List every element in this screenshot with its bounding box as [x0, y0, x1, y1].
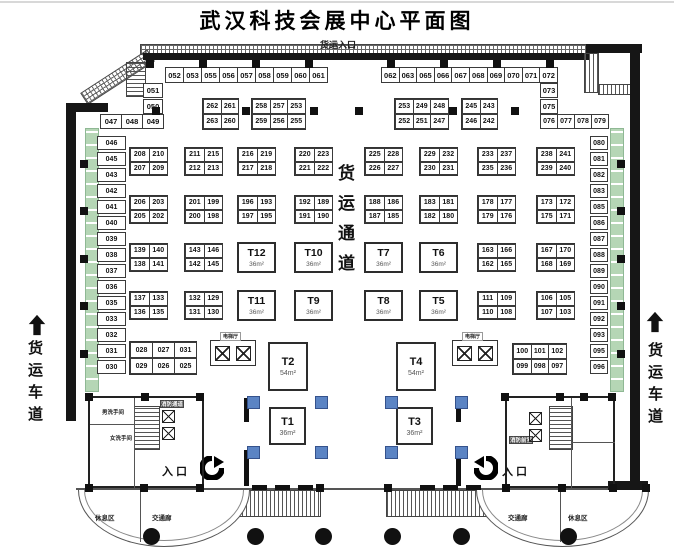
- column-circle: [453, 528, 470, 545]
- fire-passage-label: 消防通道: [160, 400, 184, 408]
- column-square: [608, 393, 616, 401]
- column-circle: [560, 528, 577, 545]
- booth-cell[interactable]: 079: [591, 114, 609, 129]
- booth-cell[interactable]: 255: [287, 114, 306, 129]
- blue-column-square: [385, 446, 398, 459]
- top-wall: [143, 53, 589, 60]
- column-square: [387, 60, 395, 68]
- elevator-hall-label-left: 电梯厅: [220, 332, 241, 341]
- blue-column-square: [315, 396, 328, 409]
- booth-cell[interactable]: 046: [97, 136, 126, 150]
- booth-cell[interactable]: 137: [130, 292, 150, 306]
- booth-cell[interactable]: 061: [309, 67, 328, 83]
- booth-cell[interactable]: 198: [204, 210, 224, 224]
- booth-cell[interactable]: 132: [185, 292, 205, 306]
- booth-cell[interactable]: 191: [295, 210, 315, 224]
- booth-cell[interactable]: 203: [149, 196, 169, 210]
- blue-column-square: [455, 446, 468, 459]
- booth-cell[interactable]: 248: [430, 99, 449, 114]
- porch-left-divider: [140, 490, 141, 542]
- booth-cell[interactable]: 192: [295, 196, 315, 210]
- booth-cell[interactable]: 129: [204, 292, 224, 306]
- column-square: [493, 60, 501, 68]
- booth-cell[interactable]: 072: [539, 67, 558, 83]
- booth-cell[interactable]: 062: [381, 67, 400, 83]
- booth-cell[interactable]: 257: [270, 99, 289, 114]
- booth-cell[interactable]: 163: [478, 244, 498, 258]
- wall-dash: [275, 485, 290, 490]
- booth-cell[interactable]: 102: [548, 344, 567, 359]
- booth-cell[interactable]: 042: [97, 184, 126, 198]
- booth-cell[interactable]: 176: [497, 210, 517, 224]
- booth-cell[interactable]: 212: [185, 162, 205, 176]
- booth-cell[interactable]: 053: [183, 67, 202, 83]
- column-square: [305, 60, 313, 68]
- booth-cell[interactable]: 218: [257, 162, 277, 176]
- booth-cell[interactable]: 059: [273, 67, 292, 83]
- booth-cell[interactable]: 168: [537, 258, 557, 272]
- booth-cell[interactable]: 258: [252, 99, 271, 114]
- booth-cell[interactable]: 067: [451, 67, 470, 83]
- booth-cell[interactable]: 167: [537, 244, 557, 258]
- column-circle: [247, 528, 264, 545]
- booth-cell[interactable]: 143: [185, 244, 205, 258]
- booth-cell[interactable]: 106: [537, 292, 557, 306]
- booth-cell[interactable]: 069: [487, 67, 506, 83]
- booth-cell[interactable]: 103: [556, 306, 576, 320]
- column-square: [355, 107, 363, 115]
- booth-cell[interactable]: 183: [420, 196, 440, 210]
- column-square: [199, 60, 207, 68]
- booth-cell[interactable]: 232: [439, 148, 459, 162]
- booth-cell[interactable]: 195: [257, 210, 277, 224]
- booth-cell[interactable]: 027: [152, 342, 175, 358]
- freight-lane-label-right: 货运车道: [644, 342, 665, 430]
- booth-cell[interactable]: 093: [590, 328, 608, 342]
- booth-cell[interactable]: 175: [537, 210, 557, 224]
- booth-cell[interactable]: 246: [462, 114, 481, 129]
- elevator-bank-right: [452, 340, 498, 366]
- booth-cell[interactable]: 187: [365, 210, 385, 224]
- booth-cell[interactable]: 048: [121, 114, 143, 129]
- column-circle: [384, 528, 401, 545]
- freight-entrance-label: 货运入口: [320, 38, 356, 51]
- booth-t10[interactable]: T1036m²: [294, 242, 333, 273]
- booth-cell[interactable]: 026: [152, 358, 175, 374]
- booth-cell[interactable]: 058: [255, 67, 274, 83]
- booth-cell[interactable]: 178: [478, 196, 498, 210]
- booth-cell[interactable]: 162: [478, 258, 498, 272]
- column-square: [511, 107, 519, 115]
- booth-cell[interactable]: 131: [185, 306, 205, 320]
- booth-cell[interactable]: 056: [219, 67, 238, 83]
- booth-cell[interactable]: 068: [469, 67, 488, 83]
- booth-cell[interactable]: 070: [504, 67, 523, 83]
- booth-cell[interactable]: 190: [314, 210, 334, 224]
- booth-t6[interactable]: T636m²: [419, 242, 458, 273]
- booth-t12[interactable]: T1236m²: [237, 242, 276, 273]
- booth-cell[interactable]: 133: [149, 292, 169, 306]
- booth-cell[interactable]: 240: [556, 162, 576, 176]
- booth-cell[interactable]: 228: [384, 148, 404, 162]
- booth-cell[interactable]: 225: [365, 148, 385, 162]
- booth-cell[interactable]: 210: [149, 148, 169, 162]
- booth-cell[interactable]: 107: [537, 306, 557, 320]
- booth-cell[interactable]: 262: [203, 99, 222, 114]
- booth-cell[interactable]: 055: [201, 67, 220, 83]
- booth-cell[interactable]: 171: [556, 210, 576, 224]
- column-square: [642, 484, 650, 492]
- entrance-arrow-right-icon: [474, 456, 498, 480]
- right-wall: [630, 48, 640, 490]
- booth-cell[interactable]: 238: [537, 148, 557, 162]
- booth-cell[interactable]: 229: [420, 148, 440, 162]
- booth-cell[interactable]: 256: [270, 114, 289, 129]
- column-square: [80, 302, 88, 310]
- blue-column-square: [247, 446, 260, 459]
- booth-cell[interactable]: 031: [174, 342, 197, 358]
- booth-cell[interactable]: 237: [497, 148, 517, 162]
- booth-cell[interactable]: 032: [97, 328, 126, 342]
- booth-cell[interactable]: 236: [497, 162, 517, 176]
- freight-lane-arrow-right-icon: [644, 310, 666, 334]
- booth-cell[interactable]: 226: [365, 162, 385, 176]
- booth-cell[interactable]: 263: [203, 114, 222, 129]
- booth-cell[interactable]: 057: [237, 67, 256, 83]
- booth-cell[interactable]: 220: [295, 148, 315, 162]
- booth-t11[interactable]: T1136m²: [237, 290, 276, 321]
- floor-plan: 武汉科技会展中心平面图 货运入口 货运通道 货运车道 货运车道 入口 入口 电梯…: [0, 0, 674, 556]
- booth-cell[interactable]: 140: [149, 244, 169, 258]
- womens-restroom-label: 女洗手间: [110, 434, 132, 442]
- booth-t2[interactable]: T254m²: [268, 342, 308, 391]
- booth-cell[interactable]: 051: [143, 83, 163, 98]
- booth-cell[interactable]: 230: [420, 162, 440, 176]
- booth-t4[interactable]: T454m²: [396, 342, 436, 391]
- wall-dash: [420, 485, 435, 490]
- booth-t7[interactable]: T736m²: [364, 242, 403, 273]
- booth-cell[interactable]: 043: [97, 168, 126, 182]
- wall-dash: [252, 485, 267, 490]
- booth-cell[interactable]: 235: [478, 162, 498, 176]
- booth-cell[interactable]: 231: [439, 162, 459, 176]
- booth-cell[interactable]: 029: [130, 358, 153, 374]
- booth-cell[interactable]: 037: [97, 264, 126, 278]
- column-square: [80, 255, 88, 263]
- column-circle: [315, 528, 332, 545]
- booth-cell[interactable]: 081: [590, 152, 608, 166]
- column-square: [196, 393, 204, 401]
- booth-cell[interactable]: 251: [413, 114, 432, 129]
- column-square: [85, 393, 93, 401]
- column-square: [316, 484, 324, 492]
- booth-cell[interactable]: 100: [513, 344, 532, 359]
- booth-cell[interactable]: 063: [399, 67, 418, 83]
- booth-cell[interactable]: 227: [384, 162, 404, 176]
- booth-t5[interactable]: T536m²: [419, 290, 458, 321]
- booth-cell[interactable]: 080: [590, 136, 608, 150]
- booth-cell[interactable]: 223: [314, 148, 334, 162]
- booth-cell[interactable]: 088: [590, 248, 608, 262]
- column-square: [580, 393, 588, 401]
- booth-cell[interactable]: 136: [130, 306, 150, 320]
- booth-cell[interactable]: 211: [185, 148, 205, 162]
- column-square: [242, 107, 250, 115]
- booth-cell[interactable]: 173: [537, 196, 557, 210]
- booth-cell[interactable]: 253: [395, 99, 414, 114]
- column-square: [617, 160, 625, 168]
- booth-cell[interactable]: 252: [395, 114, 414, 129]
- booth-cell[interactable]: 090: [590, 280, 608, 294]
- booth-cell[interactable]: 047: [100, 114, 122, 129]
- booth-cell[interactable]: 207: [130, 162, 150, 176]
- booth-cell[interactable]: 177: [497, 196, 517, 210]
- booth-cell[interactable]: 086: [590, 216, 608, 230]
- booth-cell[interactable]: 170: [556, 244, 576, 258]
- service-building-left: 男洗手间 女洗手间 消防通道: [88, 396, 204, 488]
- booth-cell[interactable]: 082: [590, 168, 608, 182]
- booth-cell[interactable]: 165: [497, 258, 517, 272]
- top-right-stair: [584, 53, 599, 93]
- booth-cell[interactable]: 245: [462, 99, 481, 114]
- booth-cell[interactable]: 071: [522, 67, 541, 83]
- booth-cell[interactable]: 091: [590, 296, 608, 310]
- corridor-label-right: 交通廊: [508, 512, 528, 522]
- booth-cell[interactable]: 033: [97, 312, 126, 326]
- booth-cell[interactable]: 096: [590, 360, 608, 374]
- booth-cell[interactable]: 242: [480, 114, 499, 129]
- booth-cell[interactable]: 222: [314, 162, 334, 176]
- booth-cell[interactable]: 181: [439, 196, 459, 210]
- booth-cell[interactable]: 193: [257, 196, 277, 210]
- booth-cell[interactable]: 109: [497, 292, 517, 306]
- rest-area-label-right: 休息区: [568, 512, 588, 522]
- blue-column-square: [315, 446, 328, 459]
- booth-cell[interactable]: 087: [590, 232, 608, 246]
- booth-cell[interactable]: 076: [540, 114, 558, 129]
- booth-cell[interactable]: 025: [174, 358, 197, 374]
- booth-cell[interactable]: 099: [513, 359, 532, 374]
- booth-cell[interactable]: 180: [439, 210, 459, 224]
- booth-cell[interactable]: 097: [548, 359, 567, 374]
- booth-cell[interactable]: 066: [434, 67, 453, 83]
- booth-cell[interactable]: 206: [130, 196, 150, 210]
- mens-restroom-label: 男洗手间: [102, 408, 124, 416]
- column-square: [546, 60, 554, 68]
- booth-cell[interactable]: 186: [384, 196, 404, 210]
- column-square: [140, 484, 148, 492]
- booth-cell[interactable]: 098: [531, 359, 550, 374]
- booth-cell[interactable]: 041: [97, 200, 126, 214]
- booth-cell[interactable]: 083: [590, 184, 608, 198]
- column-square: [310, 107, 318, 115]
- booth-cell[interactable]: 189: [314, 196, 334, 210]
- booth-cell[interactable]: 205: [130, 210, 150, 224]
- column-square: [617, 350, 625, 358]
- booth-cell[interactable]: 038: [97, 248, 126, 262]
- booth-cell[interactable]: 260: [221, 114, 240, 129]
- booth-cell[interactable]: 188: [365, 196, 385, 210]
- column-square: [196, 484, 204, 492]
- booth-cell[interactable]: 233: [478, 148, 498, 162]
- column-square: [501, 393, 509, 401]
- booth-cell[interactable]: 196: [238, 196, 258, 210]
- booth-cell[interactable]: 039: [97, 232, 126, 246]
- booth-cell[interactable]: 208: [130, 148, 150, 162]
- booth-cell[interactable]: 111: [478, 292, 498, 306]
- booth-cell[interactable]: 092: [590, 312, 608, 326]
- blue-column-square: [455, 396, 468, 409]
- booth-cell[interactable]: 073: [540, 83, 558, 98]
- column-square: [449, 107, 457, 115]
- booth-cell[interactable]: 239: [537, 162, 557, 176]
- booth-cell[interactable]: 130: [204, 306, 224, 320]
- booth-cell[interactable]: 213: [204, 162, 224, 176]
- top-edge-line: [0, 1, 674, 3]
- booth-cell[interactable]: 253: [287, 99, 306, 114]
- booth-cell[interactable]: 146: [204, 244, 224, 258]
- booth-cell[interactable]: 182: [420, 210, 440, 224]
- booth-cell[interactable]: 031: [97, 344, 126, 358]
- booth-t3[interactable]: T336m²: [396, 407, 433, 445]
- building-right-stairs: [549, 406, 573, 450]
- booth-cell[interactable]: 030: [97, 360, 126, 374]
- service-building-right: 消防前室: [505, 396, 615, 488]
- booth-cell[interactable]: 105: [556, 292, 576, 306]
- column-square: [252, 60, 260, 68]
- booth-cell[interactable]: 089: [590, 264, 608, 278]
- freight-lane-label-left: 货运车道: [24, 340, 45, 428]
- booth-cell[interactable]: 110: [478, 306, 498, 320]
- column-square: [617, 207, 625, 215]
- column-square: [617, 302, 625, 310]
- left-wall: [66, 103, 76, 421]
- blue-column-square: [247, 396, 260, 409]
- booth-cell[interactable]: 139: [130, 244, 150, 258]
- column-square: [80, 207, 88, 215]
- booth-cell[interactable]: 085: [590, 200, 608, 214]
- column-circle: [143, 528, 160, 545]
- elevator-hall-label-right: 电梯厅: [462, 332, 483, 341]
- column-square: [80, 350, 88, 358]
- booth-cell[interactable]: 028: [130, 342, 153, 358]
- wall-dash: [466, 485, 481, 490]
- booth-cell[interactable]: 200: [185, 210, 205, 224]
- booth-cell[interactable]: 216: [238, 148, 258, 162]
- booth-cell[interactable]: 045: [97, 152, 126, 166]
- booth-cell[interactable]: 077: [557, 114, 575, 129]
- booth-cell[interactable]: 243: [480, 99, 499, 114]
- booth-cell[interactable]: 052: [165, 67, 184, 83]
- booth-t9[interactable]: T936m²: [294, 290, 333, 321]
- column-square: [384, 484, 392, 492]
- wall-dash: [298, 485, 313, 490]
- column-square: [152, 107, 160, 115]
- booth-cell[interactable]: 201: [185, 196, 205, 210]
- booth-t8[interactable]: T836m²: [364, 290, 403, 321]
- blue-column-square: [385, 396, 398, 409]
- booth-cell[interactable]: 060: [291, 67, 310, 83]
- booth-cell[interactable]: 215: [204, 148, 224, 162]
- column-square: [617, 255, 625, 263]
- booth-cell[interactable]: 135: [149, 306, 169, 320]
- booth-t1[interactable]: T136m²: [269, 407, 306, 445]
- booth-cell[interactable]: 202: [149, 210, 169, 224]
- column-square: [80, 160, 88, 168]
- column-square: [85, 484, 93, 492]
- booth-cell[interactable]: 075: [540, 99, 558, 114]
- booth-cell[interactable]: 108: [497, 306, 517, 320]
- booth-cell[interactable]: 185: [384, 210, 404, 224]
- booth-cell[interactable]: 247: [430, 114, 449, 129]
- booth-cell[interactable]: 197: [238, 210, 258, 224]
- booth-cell[interactable]: 145: [204, 258, 224, 272]
- booth-cell[interactable]: 036: [97, 280, 126, 294]
- booth-cell[interactable]: 138: [130, 258, 150, 272]
- booth-cell[interactable]: 241: [556, 148, 576, 162]
- booth-cell[interactable]: 209: [149, 162, 169, 176]
- booth-cell[interactable]: 249: [413, 99, 432, 114]
- column-square: [146, 60, 154, 68]
- booth-cell[interactable]: 141: [149, 258, 169, 272]
- column-square: [558, 484, 566, 492]
- booth-cell[interactable]: 172: [556, 196, 576, 210]
- booth-cell[interactable]: 199: [204, 196, 224, 210]
- booth-cell[interactable]: 166: [497, 244, 517, 258]
- booth-cell[interactable]: 261: [221, 99, 240, 114]
- page-title: 武汉科技会展中心平面图: [0, 5, 674, 35]
- column-square: [440, 60, 448, 68]
- booth-cell[interactable]: 259: [252, 114, 271, 129]
- column-square: [502, 484, 510, 492]
- corridor-label-left: 交通廊: [152, 512, 172, 522]
- booth-cell[interactable]: 101: [531, 344, 550, 359]
- rest-area-label-left: 休息区: [95, 512, 115, 522]
- building-left-stairs: [134, 406, 160, 450]
- booth-cell[interactable]: 049: [142, 114, 164, 129]
- elevator-bank-left: [210, 340, 256, 366]
- booth-cell[interactable]: 179: [478, 210, 498, 224]
- column-square: [556, 393, 564, 401]
- column-square: [609, 484, 617, 492]
- booth-cell[interactable]: 221: [295, 162, 315, 176]
- booth-cell[interactable]: 035: [97, 296, 126, 310]
- booth-cell[interactable]: 217: [238, 162, 258, 176]
- booth-cell[interactable]: 169: [556, 258, 576, 272]
- booth-cell[interactable]: 142: [185, 258, 205, 272]
- booth-cell[interactable]: 065: [416, 67, 435, 83]
- booth-cell[interactable]: 078: [574, 114, 592, 129]
- column-square: [141, 393, 149, 401]
- central-aisle-label: 货运通道: [332, 164, 357, 284]
- booth-cell[interactable]: 219: [257, 148, 277, 162]
- freight-lane-arrow-left-icon: [26, 313, 48, 337]
- booth-cell[interactable]: 095: [590, 344, 608, 358]
- booth-cell[interactable]: 040: [97, 216, 126, 230]
